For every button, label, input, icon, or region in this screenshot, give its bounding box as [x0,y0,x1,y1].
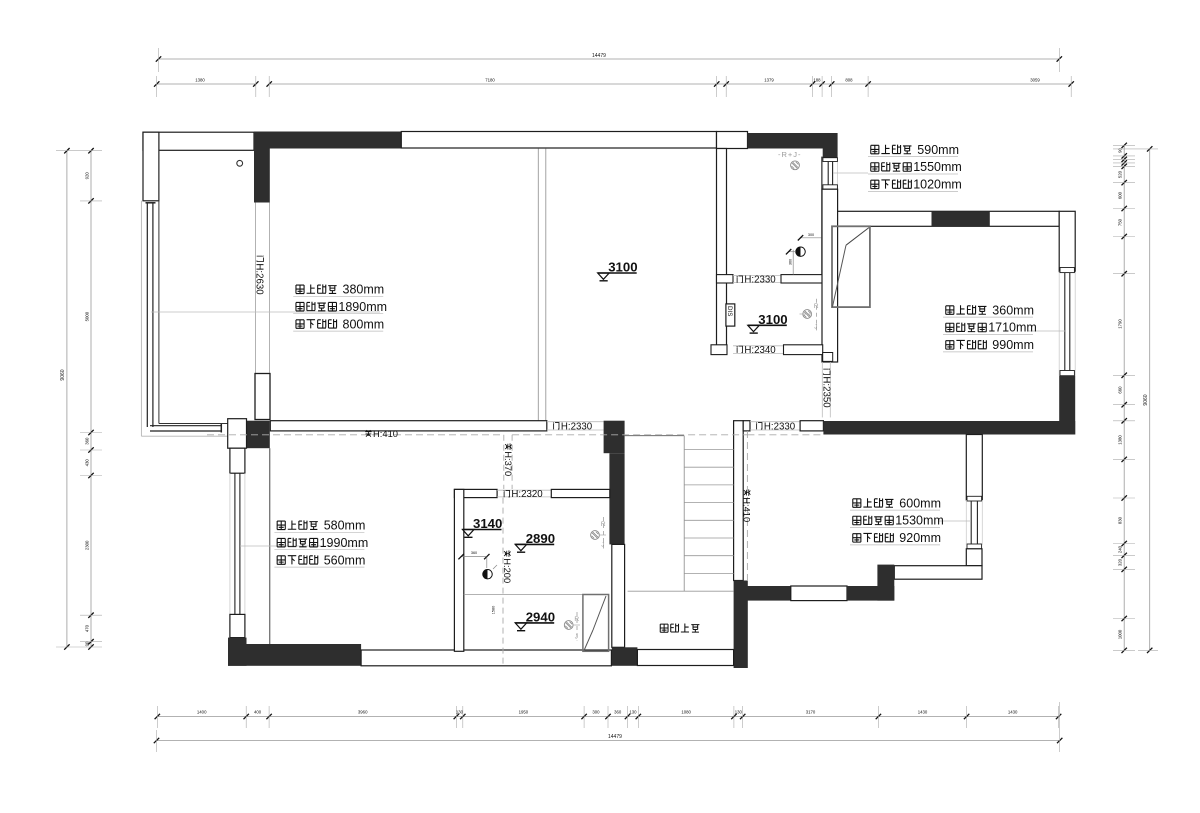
svg-text:470: 470 [85,624,90,632]
svg-text:188: 188 [813,78,821,83]
svg-text:J: J [601,542,604,549]
svg-text:600mm: 600mm [899,496,941,510]
svg-text:1890mm: 1890mm [338,300,387,314]
svg-text:1380: 1380 [1118,435,1123,445]
svg-text:1000: 1000 [1118,629,1123,639]
svg-text:14479: 14479 [608,734,622,740]
svg-text:1080: 1080 [681,710,691,715]
svg-text:-R+J-: -R+J- [778,150,802,159]
svg-text:1379: 1379 [764,78,774,83]
svg-text:1020mm: 1020mm [913,178,962,192]
svg-text:580mm: 580mm [324,519,366,533]
svg-text:800mm: 800mm [343,317,385,331]
svg-text:90: 90 [1118,148,1123,153]
svg-text:130: 130 [735,710,743,715]
svg-text:1430: 1430 [918,710,928,715]
svg-text:300: 300 [808,233,814,237]
svg-text:J: J [575,634,578,641]
svg-text:1950: 1950 [519,710,529,715]
svg-text:1400: 1400 [197,710,207,715]
svg-text:920mm: 920mm [899,531,941,545]
svg-text:1990mm: 1990mm [320,536,369,550]
svg-text:5000: 5000 [85,311,90,321]
svg-text:1530mm: 1530mm [895,514,944,528]
svg-text:600: 600 [1118,191,1123,199]
svg-text:300: 300 [592,710,600,715]
svg-text:660: 660 [1118,386,1123,394]
svg-text:1580: 1580 [492,606,496,614]
svg-text:R: R [601,521,606,528]
svg-text:130: 130 [629,710,637,715]
svg-text:14479: 14479 [592,53,606,59]
svg-text:H:2340: H:2340 [744,345,776,356]
svg-text:1550mm: 1550mm [913,160,962,174]
svg-text:750: 750 [1118,218,1123,226]
svg-text:J: J [814,323,817,330]
svg-text:R: R [814,303,819,310]
svg-text:400: 400 [254,710,262,715]
svg-text:H:2350: H:2350 [820,376,831,408]
svg-text:3100: 3100 [758,312,787,327]
svg-text:H:200: H:200 [502,558,513,583]
svg-text:560mm: 560mm [324,553,366,567]
svg-text:H:410: H:410 [373,428,398,439]
svg-text:520: 520 [1118,170,1123,178]
svg-text:1790: 1790 [1118,319,1123,329]
svg-text:3140: 3140 [473,516,502,531]
svg-text:3100: 3100 [608,260,637,275]
svg-text:H:370: H:370 [503,451,514,476]
svg-text:1380: 1380 [195,78,205,83]
svg-text:2890: 2890 [526,531,555,546]
svg-text:360: 360 [789,259,793,265]
svg-text:380mm: 380mm [343,283,385,297]
svg-text:3170: 3170 [806,710,816,715]
svg-text:H:2630: H:2630 [254,263,265,295]
svg-text:360: 360 [471,551,477,555]
svg-text:H:2320: H:2320 [511,489,543,500]
svg-text:2300: 2300 [85,540,90,550]
svg-text:H:2330: H:2330 [561,421,593,432]
svg-text:830: 830 [1118,516,1123,524]
svg-text:9060: 9060 [60,369,66,380]
svg-text:3059: 3059 [1030,78,1040,83]
svg-text:H:2330: H:2330 [744,275,776,286]
svg-text:808: 808 [845,78,853,83]
svg-text:R: R [574,616,579,623]
svg-text:590mm: 590mm [917,143,959,157]
svg-text:360mm: 360mm [992,303,1034,317]
svg-text:90: 90 [85,641,90,646]
svg-text:1710mm: 1710mm [988,321,1037,335]
svg-text:360: 360 [85,437,90,445]
svg-text:320: 320 [1118,558,1123,566]
svg-text:430: 430 [85,459,90,467]
svg-text:130: 130 [456,710,464,715]
svg-text:DIS: DIS [726,306,733,316]
svg-text:7180: 7180 [485,78,495,83]
svg-text:H:410: H:410 [742,497,753,522]
svg-text:990mm: 990mm [992,338,1034,352]
svg-text:3960: 3960 [358,710,368,715]
svg-text:360: 360 [614,710,622,715]
svg-text:9060: 9060 [1143,394,1149,405]
svg-text:H:2330: H:2330 [764,421,796,432]
svg-text:920: 920 [85,172,90,180]
svg-text:2940: 2940 [526,609,555,624]
svg-text:1430: 1430 [1008,710,1018,715]
svg-text:240: 240 [1118,545,1123,553]
